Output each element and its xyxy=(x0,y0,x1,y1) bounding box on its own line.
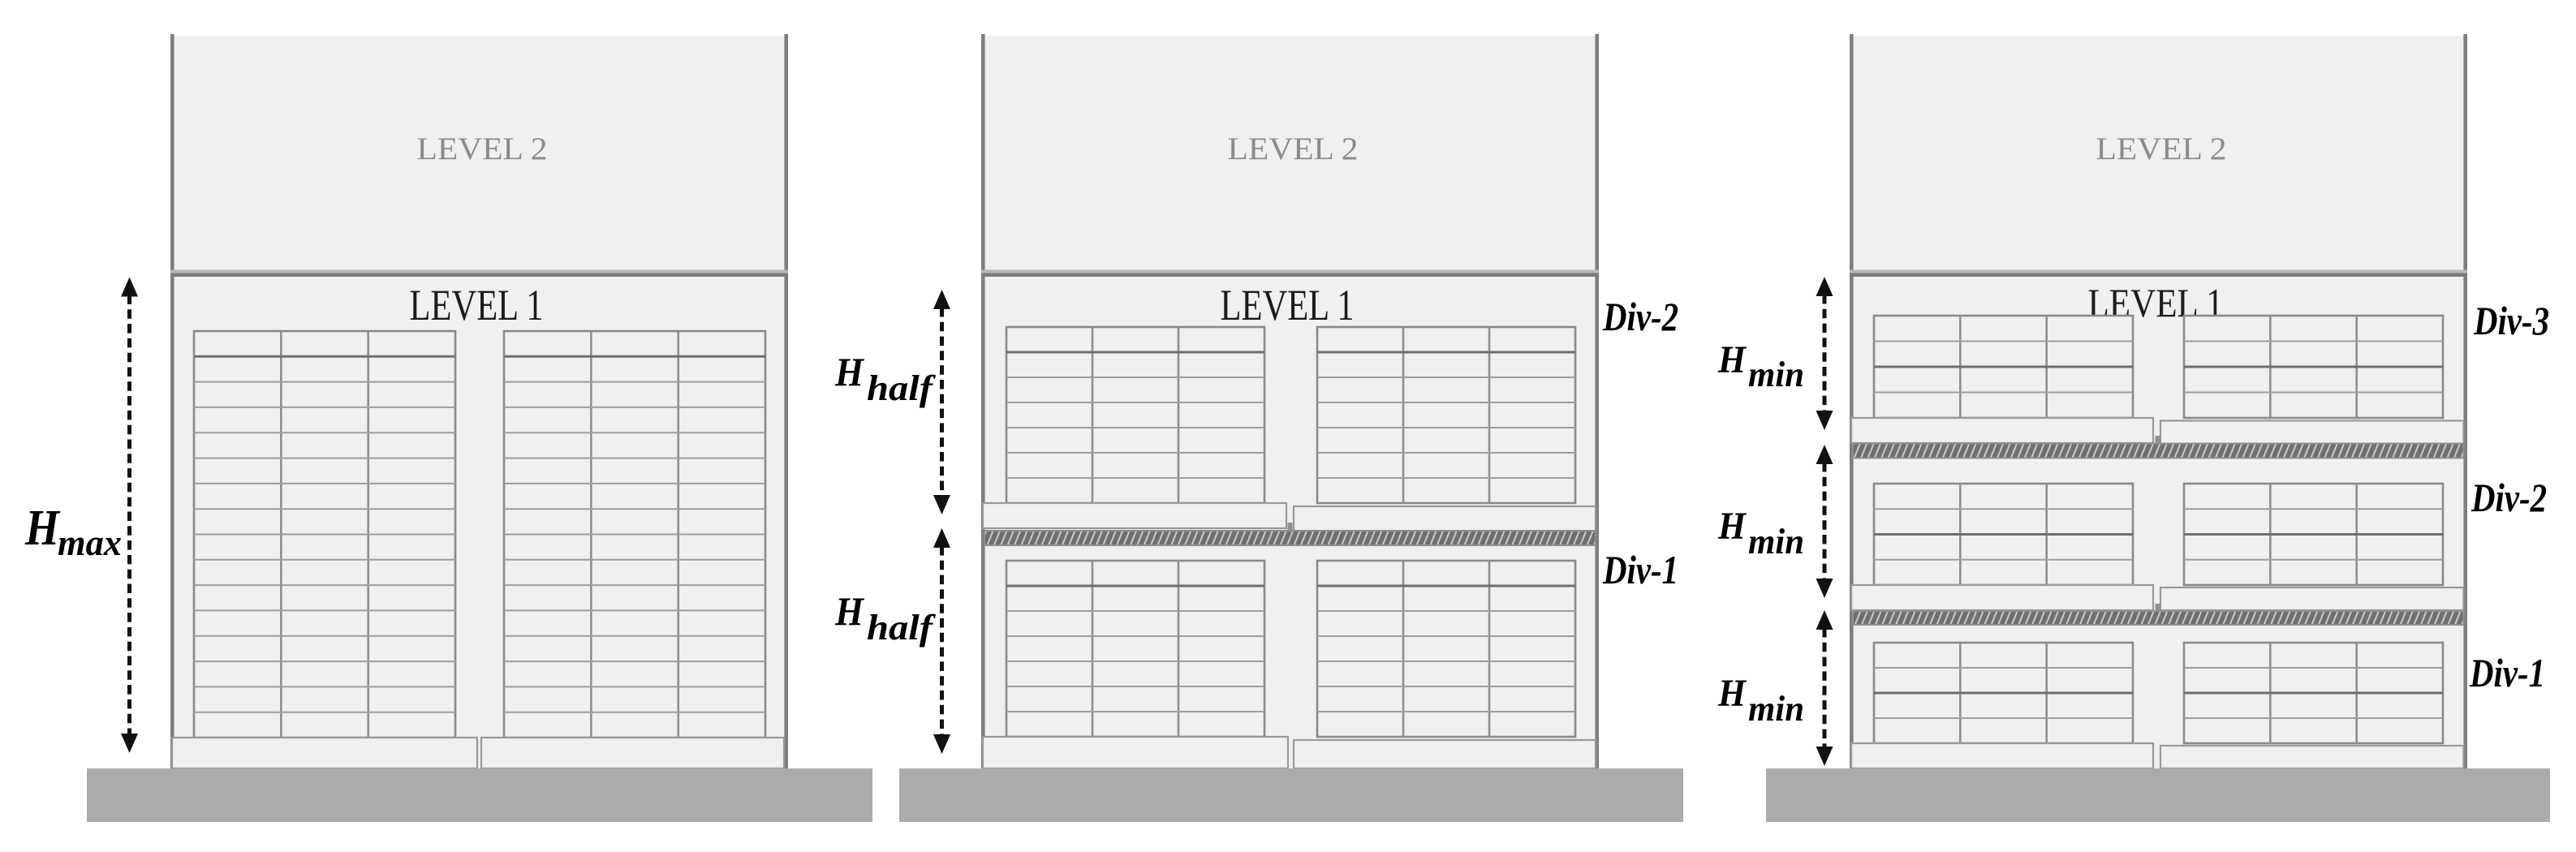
svg-text:LEVEL 2: LEVEL 2 xyxy=(1228,131,1359,166)
svg-text:H: H xyxy=(24,501,60,556)
svg-text:max: max xyxy=(58,522,122,563)
svg-text:H: H xyxy=(1717,505,1747,548)
svg-text:H: H xyxy=(1717,338,1747,381)
svg-text:Div-1: Div-1 xyxy=(1602,547,1678,592)
svg-text:LEVEL 1: LEVEL 1 xyxy=(1221,281,1355,329)
svg-text:LEVEL 1: LEVEL 1 xyxy=(410,281,544,329)
svg-text:Div-3: Div-3 xyxy=(2473,298,2549,343)
svg-text:LEVEL 2: LEVEL 2 xyxy=(417,131,548,166)
svg-text:Div-1: Div-1 xyxy=(2469,650,2545,695)
svg-text:min: min xyxy=(1748,522,1804,562)
svg-text:half: half xyxy=(867,368,937,408)
svg-text:H: H xyxy=(1717,672,1747,715)
svg-text:H: H xyxy=(834,349,865,394)
svg-text:min: min xyxy=(1748,355,1804,394)
svg-text:min: min xyxy=(1748,689,1804,729)
svg-text:Div-2: Div-2 xyxy=(2470,475,2547,520)
svg-text:Div-2: Div-2 xyxy=(1602,294,1678,339)
svg-text:LEVEL 2: LEVEL 2 xyxy=(2096,131,2227,166)
svg-text:half: half xyxy=(867,608,937,648)
svg-text:H: H xyxy=(834,588,865,634)
